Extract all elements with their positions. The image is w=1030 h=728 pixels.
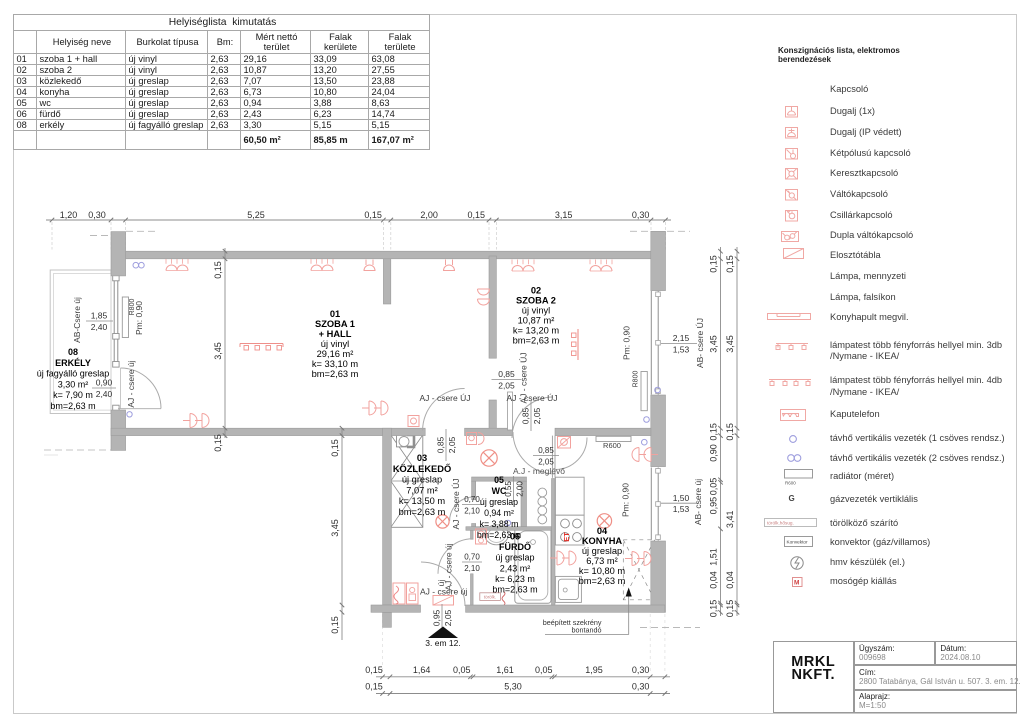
svg-text:0,15: 0,15 — [365, 682, 383, 692]
svg-text:új greslap: új greslap — [495, 553, 534, 563]
svg-text:új greslap: új greslap — [480, 497, 518, 507]
svg-text:0,15: 0,15 — [365, 665, 383, 675]
svg-text:Pm: 0,90: Pm: 0,90 — [134, 301, 144, 335]
svg-text:0,15: 0,15 — [709, 255, 719, 273]
svg-text:R600: R600 — [785, 480, 796, 485]
svg-text:3,45: 3,45 — [709, 335, 719, 353]
svg-text:0,15: 0,15 — [213, 261, 223, 279]
svg-text:0,05: 0,05 — [453, 665, 471, 675]
svg-text:2,10: 2,10 — [464, 564, 480, 573]
svg-text:új fagyálló greslap: új fagyálló greslap — [37, 369, 110, 379]
svg-text:bm=2,63 m: bm=2,63 m — [492, 585, 537, 595]
svg-text:0,94 m²: 0,94 m² — [484, 508, 514, 518]
svg-text:FÜRDŐ: FÜRDŐ — [499, 541, 531, 552]
svg-text:2,05: 2,05 — [532, 407, 542, 424]
svg-text:0,15: 0,15 — [468, 210, 486, 220]
svg-text:új: új — [436, 580, 446, 587]
svg-text:AJ - csere új: AJ - csere új — [420, 587, 467, 597]
svg-text:bm=2,63 m: bm=2,63 m — [513, 335, 560, 345]
svg-text:3,15: 3,15 — [555, 210, 573, 220]
svg-text:2,05: 2,05 — [443, 609, 453, 626]
svg-text:2,05: 2,05 — [447, 436, 457, 453]
svg-text:ERKÉLY: ERKÉLY — [55, 358, 91, 368]
svg-text:1,61: 1,61 — [496, 665, 514, 675]
svg-text:6,73 m²: 6,73 m² — [586, 556, 618, 566]
svg-text:1,53: 1,53 — [673, 345, 690, 355]
svg-text:AB-Csere új: AB-Csere új — [72, 297, 82, 343]
svg-text:0,90: 0,90 — [96, 378, 113, 388]
svg-text:1,95: 1,95 — [585, 665, 603, 675]
svg-text:2,40: 2,40 — [96, 389, 113, 399]
svg-text:0,05: 0,05 — [535, 665, 553, 675]
svg-text:0,15: 0,15 — [330, 439, 340, 457]
svg-text:3,45: 3,45 — [330, 519, 340, 537]
svg-text:bm=2,63 m: bm=2,63 m — [579, 576, 626, 586]
svg-text:1,85: 1,85 — [91, 311, 108, 321]
svg-text:2,00: 2,00 — [420, 210, 438, 220]
svg-text:05: 05 — [494, 475, 504, 485]
svg-text:0,15: 0,15 — [330, 616, 340, 634]
svg-text:törölk.hősug.: törölk.hősug. — [767, 521, 794, 526]
svg-text:AJ - csere ÚJ: AJ - csere ÚJ — [419, 393, 470, 403]
svg-text:10,87 m²: 10,87 m² — [518, 315, 555, 325]
svg-text:AB- csere új: AB- csere új — [693, 479, 703, 525]
svg-text:2,15: 2,15 — [673, 333, 690, 343]
svg-text:M: M — [794, 579, 799, 586]
svg-text:Konvektor: Konvektor — [787, 540, 809, 545]
svg-text:0,70: 0,70 — [464, 495, 480, 504]
svg-text:1,64: 1,64 — [413, 665, 431, 675]
svg-text:k= 10,80 m: k= 10,80 m — [579, 566, 626, 576]
svg-text:3. em 12.: 3. em 12. — [425, 638, 460, 648]
svg-text:7,07 m²: 7,07 m² — [406, 485, 438, 495]
svg-text:0,15: 0,15 — [725, 255, 735, 273]
svg-text:0,15: 0,15 — [725, 600, 735, 618]
svg-text:k= 33,10 m: k= 33,10 m — [312, 359, 359, 369]
svg-text:2,00: 2,00 — [516, 481, 525, 497]
svg-text:AJ - csere új: AJ - csere új — [126, 360, 136, 407]
svg-text:2,43 m²: 2,43 m² — [500, 563, 531, 573]
svg-text:0,95: 0,95 — [709, 497, 719, 515]
svg-text:29,16 m²: 29,16 m² — [317, 349, 354, 359]
svg-text:AJ - csere ÚJ: AJ - csere ÚJ — [506, 393, 557, 403]
svg-text:2,40: 2,40 — [91, 322, 108, 332]
svg-text:k= 7,90 m: k= 7,90 m — [53, 390, 93, 400]
svg-text:3,41: 3,41 — [725, 511, 735, 529]
svg-text:0,15: 0,15 — [725, 423, 735, 441]
svg-text:1,50: 1,50 — [673, 493, 690, 503]
svg-text:KONYHA: KONYHA — [582, 536, 623, 546]
svg-text:0,85: 0,85 — [436, 436, 446, 453]
svg-text:0,04: 0,04 — [725, 571, 735, 589]
svg-text:3,45: 3,45 — [213, 342, 223, 360]
svg-text:új greslap: új greslap — [402, 475, 442, 485]
svg-text:0,05: 0,05 — [709, 478, 719, 496]
svg-text:0,95: 0,95 — [432, 609, 442, 626]
svg-text:SZOBA 1: SZOBA 1 — [315, 319, 355, 329]
svg-text:5,30: 5,30 — [504, 682, 522, 692]
svg-text:04: 04 — [597, 526, 608, 536]
svg-text:1,20: 1,20 — [60, 210, 78, 220]
svg-text:0,85: 0,85 — [521, 407, 531, 424]
svg-text:KÖZLEKEDŐ: KÖZLEKEDŐ — [393, 463, 451, 474]
svg-text:bm=2,63 m: bm=2,63 m — [399, 507, 446, 517]
svg-text:k= 13,50 m: k= 13,50 m — [399, 496, 446, 506]
svg-text:R600: R600 — [603, 441, 621, 450]
svg-text:1,53: 1,53 — [673, 504, 690, 514]
svg-text:0,30: 0,30 — [632, 682, 650, 692]
svg-text:0,15: 0,15 — [709, 600, 719, 618]
svg-text:2,05: 2,05 — [498, 381, 515, 391]
svg-text:3,30 m²: 3,30 m² — [58, 379, 89, 389]
svg-text:bm=2,63 m: bm=2,63 m — [312, 369, 359, 379]
svg-text:5,25: 5,25 — [247, 210, 265, 220]
svg-text:03: 03 — [417, 453, 427, 463]
svg-text:új greslap: új greslap — [582, 546, 622, 556]
svg-text:WC: WC — [492, 486, 507, 496]
svg-text:0,15: 0,15 — [709, 423, 719, 441]
svg-text:k= 3,88 m: k= 3,88 m — [480, 519, 519, 529]
svg-text:0,30: 0,30 — [88, 210, 106, 220]
svg-text:0,04: 0,04 — [709, 571, 719, 589]
svg-text:bontandó: bontandó — [572, 626, 602, 635]
svg-text:A.J - meglévő: A.J - meglévő — [513, 466, 565, 476]
svg-text:0,15: 0,15 — [213, 434, 223, 452]
svg-text:0,30: 0,30 — [632, 210, 650, 220]
svg-text:0,85: 0,85 — [538, 446, 554, 455]
svg-text:3,45: 3,45 — [725, 335, 735, 353]
svg-text:02: 02 — [531, 285, 541, 295]
svg-text:törölk.: törölk. — [484, 594, 496, 599]
svg-text:új vinyl: új vinyl — [321, 339, 349, 349]
svg-text:0,70: 0,70 — [464, 553, 480, 562]
svg-text:08: 08 — [68, 347, 78, 357]
svg-text:2,10: 2,10 — [464, 507, 480, 516]
svg-text:k= 6,23 m: k= 6,23 m — [495, 574, 535, 584]
svg-text:k= 13,20 m: k= 13,20 m — [513, 325, 560, 335]
svg-text:AB- csere ÚJ: AB- csere ÚJ — [695, 318, 705, 368]
svg-text:+ HALL: + HALL — [319, 329, 352, 339]
svg-text:R800: R800 — [633, 371, 640, 388]
svg-text:ET: ET — [562, 532, 571, 542]
svg-text:AJ - csere ÚJ: AJ - csere ÚJ — [451, 478, 461, 529]
svg-text:bm=2,63 m: bm=2,63 m — [50, 401, 95, 411]
svg-text:0,30: 0,30 — [632, 665, 650, 675]
svg-text:0,90: 0,90 — [709, 444, 719, 462]
svg-text:06: 06 — [510, 532, 520, 542]
svg-text:SZOBA 2: SZOBA 2 — [516, 295, 556, 305]
svg-text:új vinyl: új vinyl — [522, 305, 550, 315]
svg-text:0,85: 0,85 — [498, 369, 515, 379]
svg-text:0,15: 0,15 — [364, 210, 382, 220]
svg-text:1,51: 1,51 — [709, 548, 719, 566]
svg-text:Pm: 0,90: Pm: 0,90 — [622, 326, 632, 360]
svg-text:Pm: 0,90: Pm: 0,90 — [621, 483, 631, 517]
svg-text:01: 01 — [330, 309, 340, 319]
